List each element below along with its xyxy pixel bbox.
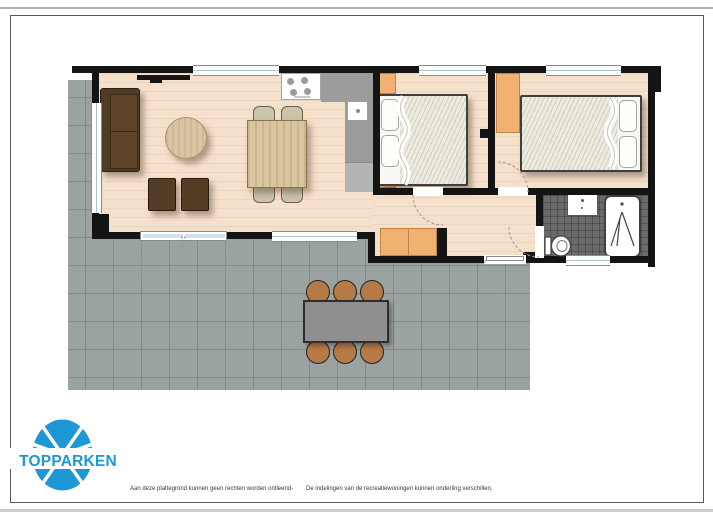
sofa-cushion: [110, 94, 138, 132]
pillow: [619, 136, 637, 168]
outdoor-table: [303, 300, 389, 343]
topparken-logo: TOPPARKEN: [8, 410, 128, 502]
pillow: [381, 99, 399, 131]
sofa-cushion: [110, 131, 138, 169]
armchair: [148, 178, 176, 211]
french-door-glass: [185, 234, 225, 238]
tv-stand: [150, 80, 162, 83]
shower: [604, 195, 641, 258]
window: [419, 65, 486, 76]
drain: [581, 207, 583, 209]
outdoor-chair: [360, 340, 384, 364]
wall: [648, 66, 655, 267]
disclaimer-right: De indelingen van de recreatiewoningen k…: [306, 486, 492, 493]
sofa: [100, 88, 140, 172]
window: [546, 65, 621, 76]
coffee-table: [165, 117, 207, 159]
wardrobe: [496, 73, 520, 133]
window: [272, 231, 357, 242]
wall: [480, 129, 495, 138]
duvet: [400, 96, 466, 184]
burner: [287, 78, 294, 85]
door-opening-bedroom-1: [413, 187, 443, 196]
faucet: [356, 109, 360, 113]
door-opening-bedroom-2: [498, 187, 528, 196]
bathroom-sink: [567, 194, 598, 216]
stove: [281, 73, 321, 100]
burner: [301, 77, 308, 84]
stove-label: [294, 96, 310, 98]
top-divider: [0, 7, 713, 9]
outdoor-chair: [333, 340, 357, 364]
dining-table: [247, 120, 307, 188]
kitchen-cabinet: [345, 162, 373, 192]
outdoor-chair: [306, 340, 330, 364]
duvet: [522, 97, 618, 170]
entrance-door-leaf: [486, 256, 524, 261]
door-opening-bathroom: [535, 226, 544, 258]
wall: [437, 228, 447, 256]
logo-text: TOPPARKEN: [19, 453, 117, 470]
french-door-glass: [143, 234, 183, 238]
kitchen-sink: [347, 101, 368, 121]
floorplan-page: TOPPARKEN Aan deze plattegrond kunnen ge…: [0, 0, 713, 519]
burner: [304, 88, 311, 95]
window: [193, 65, 279, 76]
faucet: [581, 199, 584, 202]
wall: [373, 66, 380, 195]
disclaimer-left: Aan deze plattegrond kunnen geen rechten…: [130, 486, 291, 493]
french-doors: [140, 231, 227, 241]
pillow: [381, 135, 399, 167]
entrance-door-opening: [484, 255, 526, 264]
window: [566, 255, 610, 266]
hall-cabinet: [380, 228, 437, 256]
window: [91, 103, 102, 213]
bottom-divider: [0, 509, 713, 512]
armchair: [181, 178, 209, 211]
pillow: [619, 100, 637, 132]
kitchen-counter: [321, 73, 373, 102]
terrace-left-strip: [68, 80, 92, 236]
burner: [290, 89, 297, 96]
disclaimer-separator: -: [291, 486, 293, 493]
tv: [137, 75, 190, 80]
